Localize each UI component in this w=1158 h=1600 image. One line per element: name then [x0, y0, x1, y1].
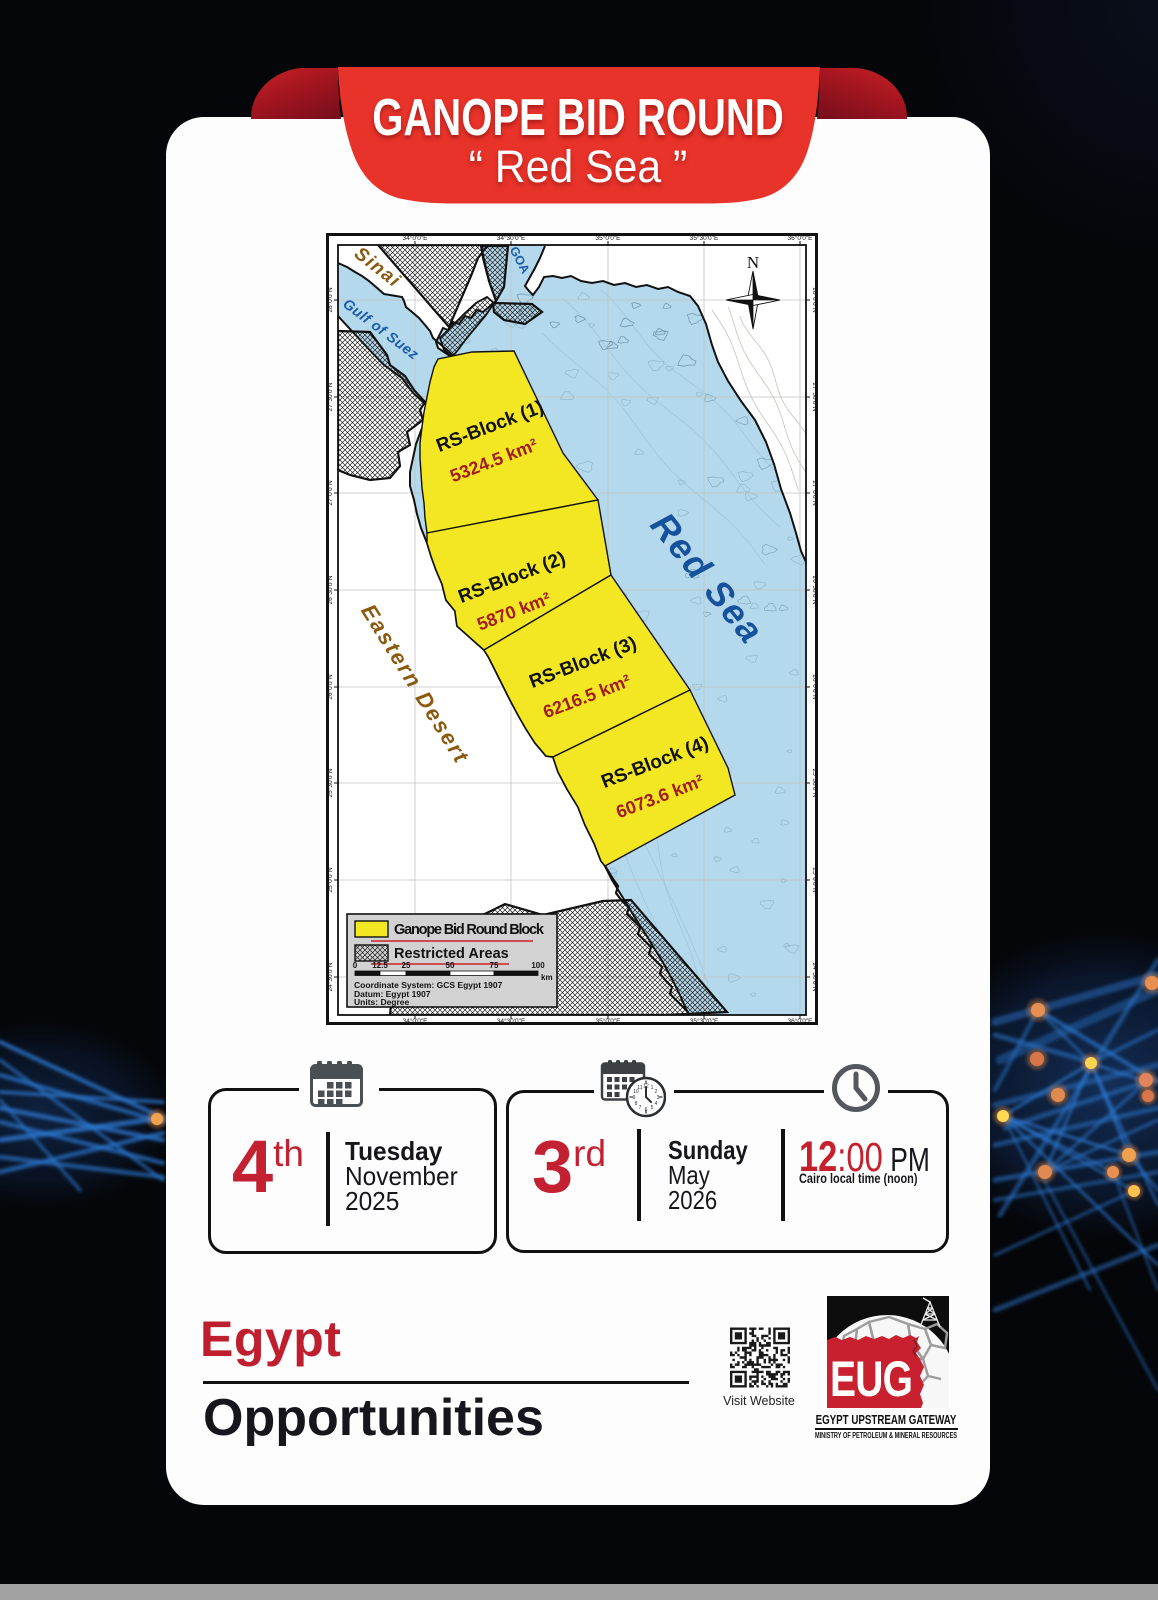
svg-text:100: 100 — [531, 961, 545, 970]
svg-text:Units: Degree: Units: Degree — [354, 997, 410, 1007]
svg-text:12.5: 12.5 — [372, 961, 388, 970]
svg-text:km: km — [541, 973, 553, 982]
svg-text:25: 25 — [402, 961, 411, 970]
svg-text:7: 7 — [639, 1105, 642, 1111]
svg-text:5: 5 — [651, 1105, 654, 1111]
svg-text:Ganope Bid Round Block: Ganope Bid Round Block — [394, 922, 545, 938]
svg-text:EUG: EUG — [830, 1350, 912, 1407]
svg-text:11: 11 — [637, 1085, 642, 1091]
svg-text:0: 0 — [353, 961, 358, 970]
svg-text:N: N — [747, 253, 759, 272]
svg-text:4: 4 — [655, 1101, 658, 1107]
svg-text:75: 75 — [490, 961, 499, 970]
svg-text:50: 50 — [446, 961, 455, 970]
svg-text:Restricted Areas: Restricted Areas — [394, 946, 509, 962]
svg-text:1: 1 — [651, 1085, 654, 1091]
svg-text:2: 2 — [655, 1089, 658, 1095]
svg-text:6: 6 — [645, 1107, 648, 1113]
svg-text:8: 8 — [635, 1101, 638, 1107]
